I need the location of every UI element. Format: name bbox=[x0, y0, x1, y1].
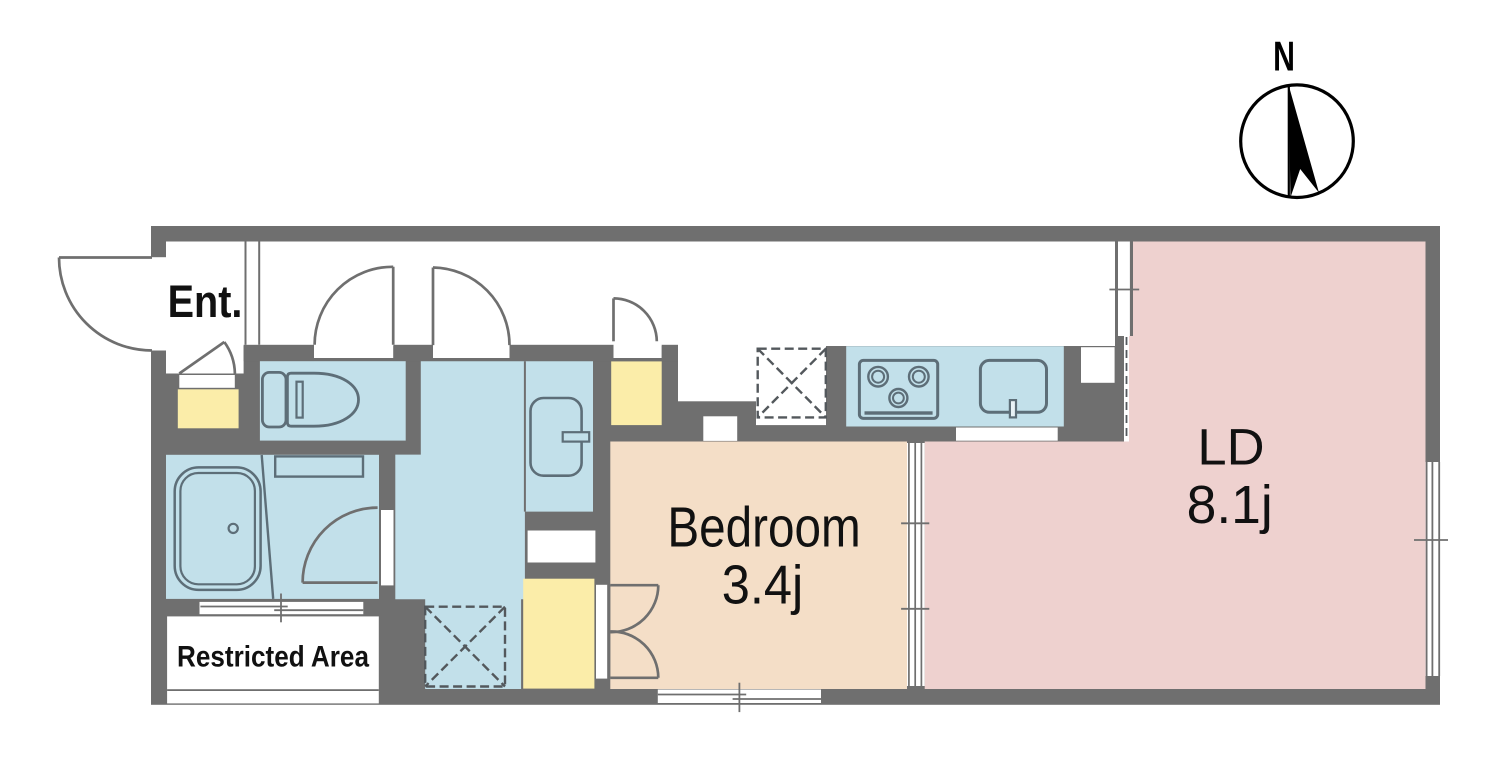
svg-text:8.1j: 8.1j bbox=[1187, 475, 1273, 535]
svg-text:Ent.: Ent. bbox=[168, 277, 243, 327]
svg-text:3.4j: 3.4j bbox=[722, 554, 804, 615]
svg-text:Bedroom: Bedroom bbox=[667, 496, 860, 560]
svg-text:Restricted Area: Restricted Area bbox=[177, 640, 369, 673]
svg-text:N: N bbox=[1273, 33, 1295, 80]
svg-text:LD: LD bbox=[1197, 418, 1264, 475]
